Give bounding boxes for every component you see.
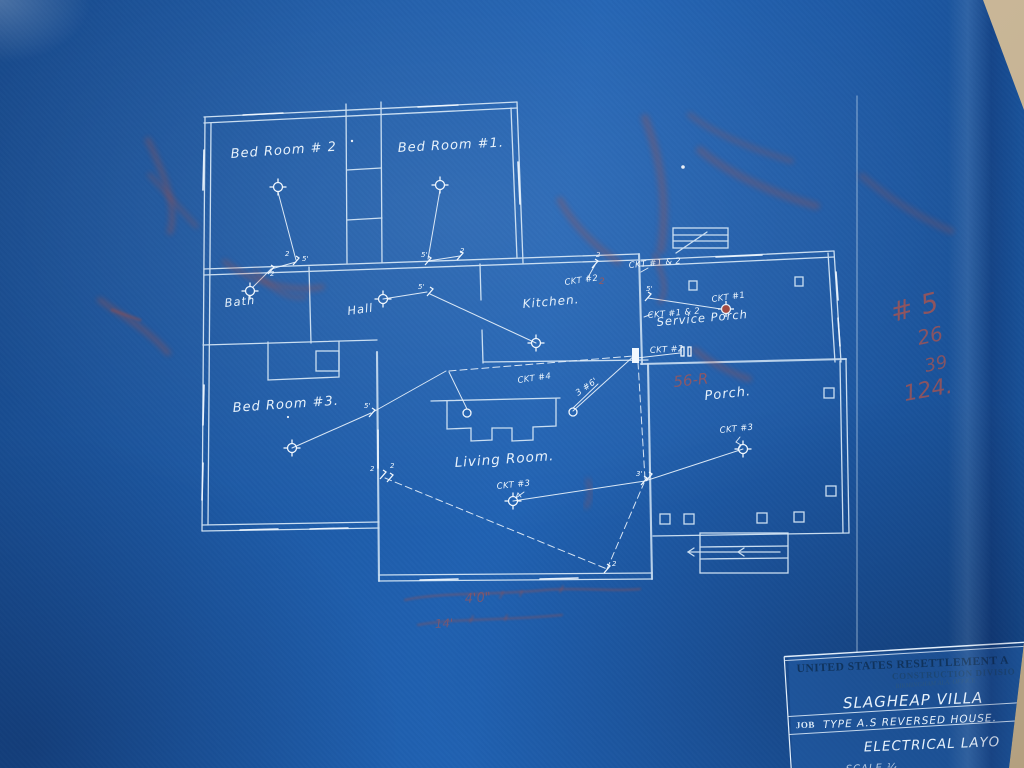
red-overwrite-digit: 2 — [599, 277, 605, 287]
red-note-fragment: 14' — [434, 616, 453, 631]
circuit-label-serviceporch-ckt1: CKT #1 — [711, 290, 746, 305]
height-mark: 5' — [418, 283, 424, 291]
room-label-bedroom3: Bed Room #3. — [232, 394, 339, 416]
red-margin-number: 124. — [902, 374, 955, 407]
room-label-hall: Hall — [346, 300, 374, 317]
height-mark: 5' — [364, 402, 370, 410]
front-steps — [688, 533, 788, 573]
ceiling-fixture-bedroom2 — [270, 179, 287, 196]
red-margin-number: 39 — [923, 352, 950, 377]
room-label-livingroom: Living Room. — [454, 448, 555, 471]
height-mark: 2 — [270, 270, 275, 278]
height-mark: 2 — [370, 465, 375, 473]
room-label-kitchen: Kitchen. — [522, 292, 580, 311]
red-note-fragment: 4'0" — [464, 590, 491, 607]
height-mark: 3' — [636, 470, 642, 478]
room-label-bedroom2: Bed Room # 2 — [230, 140, 337, 162]
switches — [268, 251, 652, 573]
height-mark: 5' — [421, 251, 427, 259]
title-block: UNITED STATES RESETTLEMENT A CONSTRUCTIO… — [784, 641, 1024, 768]
room-label-porch: Porch. — [704, 384, 752, 404]
back-steps — [673, 228, 728, 253]
circuit-label-ckt4: CKT #4 — [517, 371, 552, 386]
circuit-label-kitchen-ckt2: CKT #2 — [564, 273, 599, 288]
room-label-bedroom1: Bed Room #1. — [397, 135, 504, 156]
floor-outlet-1 — [463, 409, 471, 417]
room-label-bath: Bath — [224, 293, 256, 310]
height-mark: 5' — [646, 285, 652, 293]
red-pencil-smudges — [100, 115, 951, 625]
circuit-label-panel-ckt2: CKT #2 — [650, 344, 684, 356]
red-note-near-panel: 56-R — [673, 369, 710, 391]
height-mark: 2 — [460, 247, 465, 255]
blueprint-sheet: Bed Room # 2 Bed Room #1. Bath Hall Kitc… — [0, 0, 1024, 768]
red-margin-number: 26 — [915, 321, 945, 350]
height-mark: 2 — [285, 250, 290, 258]
photograph-of-blueprint: Bed Room # 2 Bed Room #1. Bath Hall Kitc… — [0, 0, 1024, 768]
height-mark: 5' — [302, 255, 308, 263]
ceiling-fixture-bedroom1 — [432, 177, 449, 194]
room-labels: Bed Room # 2 Bed Room #1. Bath Hall Kitc… — [224, 135, 752, 471]
blueprint-drawing: Bed Room # 2 Bed Room #1. Bath Hall Kitc… — [0, 0, 1024, 768]
title-job-prefix: JOB — [796, 719, 815, 730]
height-mark: 2 — [612, 560, 617, 568]
height-mark: 2 — [390, 462, 395, 470]
panel-box — [632, 348, 639, 363]
circuit-label-porch-ckt3: CKT #3 — [719, 423, 754, 436]
circuit-label-livingroom-ckt3: CKT #3 — [496, 479, 531, 492]
floor-outlet-2 — [569, 408, 577, 416]
